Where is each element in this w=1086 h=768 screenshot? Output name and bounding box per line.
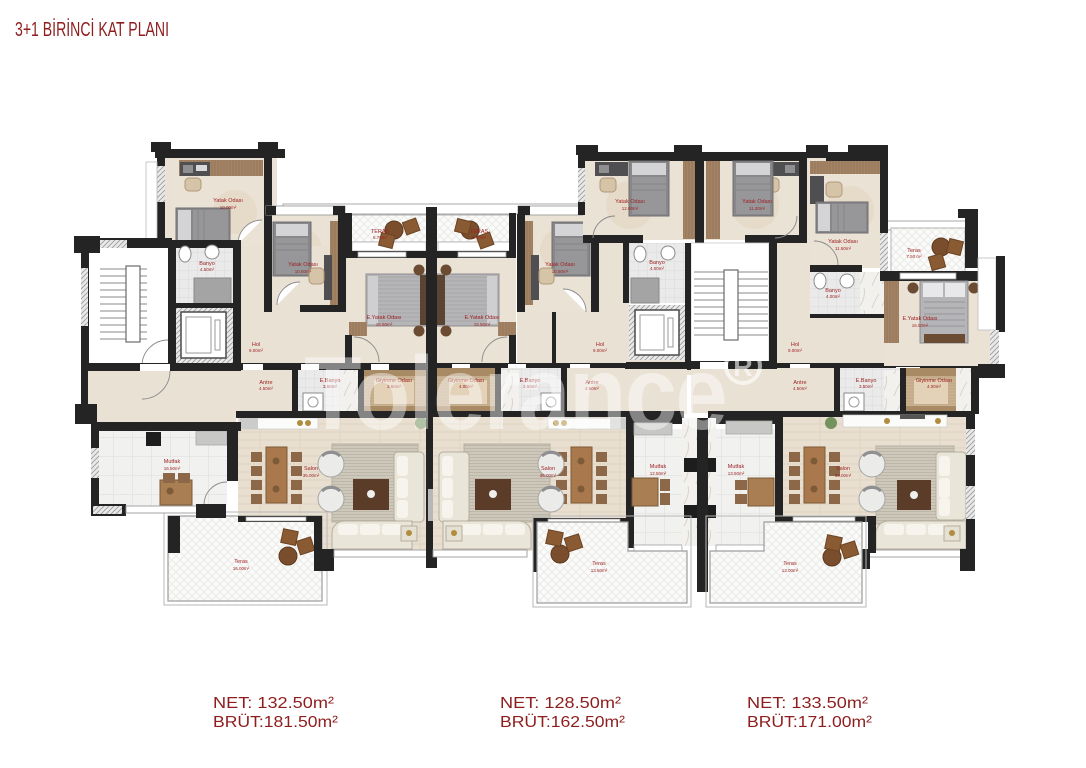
svg-text:E.Yatak Odası: E.Yatak Odası xyxy=(902,316,937,322)
svg-text:NET: 132.50m²: NET: 132.50m² xyxy=(213,695,335,712)
svg-text:Salon: Salon xyxy=(541,466,555,472)
svg-text:Yatak Odası: Yatak Odası xyxy=(615,199,645,205)
svg-text:9.00m²: 9.00m² xyxy=(788,348,803,353)
svg-text:16.00m²: 16.00m² xyxy=(233,566,250,571)
svg-text:12.50m²: 12.50m² xyxy=(650,471,667,476)
svg-text:13.50m²: 13.50m² xyxy=(728,471,745,476)
svg-text:Mutfak: Mutfak xyxy=(164,459,181,465)
svg-text:16.50m²: 16.50m² xyxy=(912,323,929,328)
svg-text:Tolerance: Tolerance xyxy=(304,336,726,452)
svg-text:Teras: Teras xyxy=(234,559,248,565)
svg-text:Mutfak: Mutfak xyxy=(728,464,745,470)
svg-text:Mutfak: Mutfak xyxy=(650,464,667,470)
svg-text:10.50m²: 10.50m² xyxy=(295,269,312,274)
svg-text:12.00m²: 12.00m² xyxy=(622,206,639,211)
svg-text:E.Yatak Odası: E.Yatak Odası xyxy=(464,315,499,321)
svg-text:15.50m²: 15.50m² xyxy=(376,322,393,327)
svg-text:5.70m²: 5.70m² xyxy=(472,235,487,240)
svg-text:13.50m²: 13.50m² xyxy=(591,568,608,573)
svg-text:Yatak Odası: Yatak Odası xyxy=(288,262,318,268)
svg-text:4.00m²: 4.00m² xyxy=(826,294,841,299)
svg-text:35.00m²: 35.00m² xyxy=(835,473,852,478)
svg-text:4.00m²: 4.00m² xyxy=(927,384,942,389)
svg-text:Teras: Teras xyxy=(592,561,606,567)
svg-text:5.70m²: 5.70m² xyxy=(373,235,388,240)
svg-text:11.20m²: 11.20m² xyxy=(749,206,766,211)
svg-text:35.00m²: 35.00m² xyxy=(540,473,557,478)
svg-text:Salon: Salon xyxy=(304,466,318,472)
svg-text:Salon: Salon xyxy=(836,466,850,472)
svg-text:11.50m²: 11.50m² xyxy=(835,246,852,251)
svg-text:NET: 128.50m²: NET: 128.50m² xyxy=(500,695,622,712)
svg-text:10.50m²: 10.50m² xyxy=(552,269,569,274)
svg-text:BRÜT:162.50m²: BRÜT:162.50m² xyxy=(500,713,626,731)
svg-text:7.50 m²: 7.50 m² xyxy=(906,254,922,259)
svg-text:4.50m²: 4.50m² xyxy=(200,267,215,272)
svg-text:4.50m²: 4.50m² xyxy=(259,386,274,391)
svg-text:R: R xyxy=(733,352,753,382)
svg-text:4.50m²: 4.50m² xyxy=(793,386,808,391)
svg-text:Yatak Odası: Yatak Odası xyxy=(828,239,858,245)
svg-text:3+1 BİRİNCİ KAT PLANI: 3+1 BİRİNCİ KAT PLANI xyxy=(15,18,169,41)
svg-text:3.50m²: 3.50m² xyxy=(859,384,874,389)
svg-text:NET: 133.50m²: NET: 133.50m² xyxy=(747,695,869,712)
svg-text:BRÜT:171.00m²: BRÜT:171.00m² xyxy=(747,713,873,731)
svg-text:15.50m²: 15.50m² xyxy=(474,322,491,327)
svg-text:Teras: Teras xyxy=(783,561,797,567)
svg-text:E.Yatak Odası: E.Yatak Odası xyxy=(366,315,401,321)
svg-text:9.00m²: 9.00m² xyxy=(249,348,264,353)
svg-text:13.00m²: 13.00m² xyxy=(782,568,799,573)
svg-text:4.00m²: 4.00m² xyxy=(650,266,665,271)
svg-text:BRÜT:181.50m²: BRÜT:181.50m² xyxy=(213,713,339,731)
svg-text:16.50m²: 16.50m² xyxy=(164,466,181,471)
svg-text:Yatak Odası: Yatak Odası xyxy=(742,199,772,205)
svg-text:35.00m²: 35.00m² xyxy=(303,473,320,478)
svg-text:10.00m²: 10.00m² xyxy=(220,205,237,210)
svg-text:Yatak Odası: Yatak Odası xyxy=(213,198,243,204)
svg-text:Yatak Odası: Yatak Odası xyxy=(545,262,575,268)
